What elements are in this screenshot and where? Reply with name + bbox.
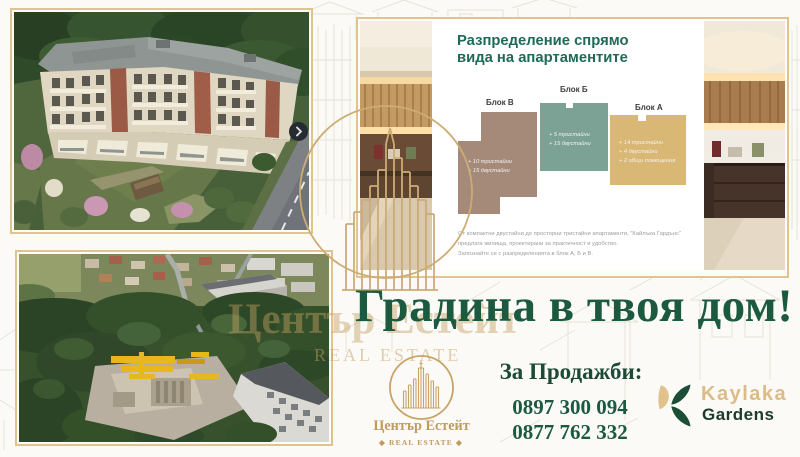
svg-text:+ 2 общи помещения: + 2 общи помещения [619, 158, 675, 164]
svg-text:+ 15 двустайни: + 15 двустайни [549, 140, 592, 147]
svg-text:+ 4 двустайни: + 4 двустайни [619, 148, 658, 155]
svg-text:+ 14 тристайни: + 14 тристайни [619, 139, 664, 146]
svg-text:+ 5 тристайни: + 5 тристайни [549, 131, 591, 138]
